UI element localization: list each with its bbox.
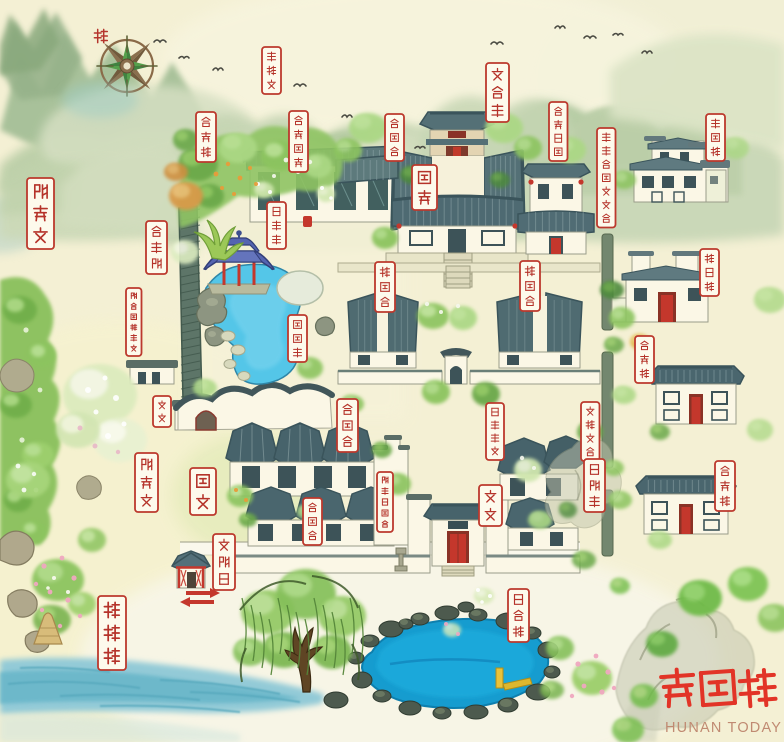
svg-text:HUNAN TODAY: HUNAN TODAY <box>665 720 782 736</box>
